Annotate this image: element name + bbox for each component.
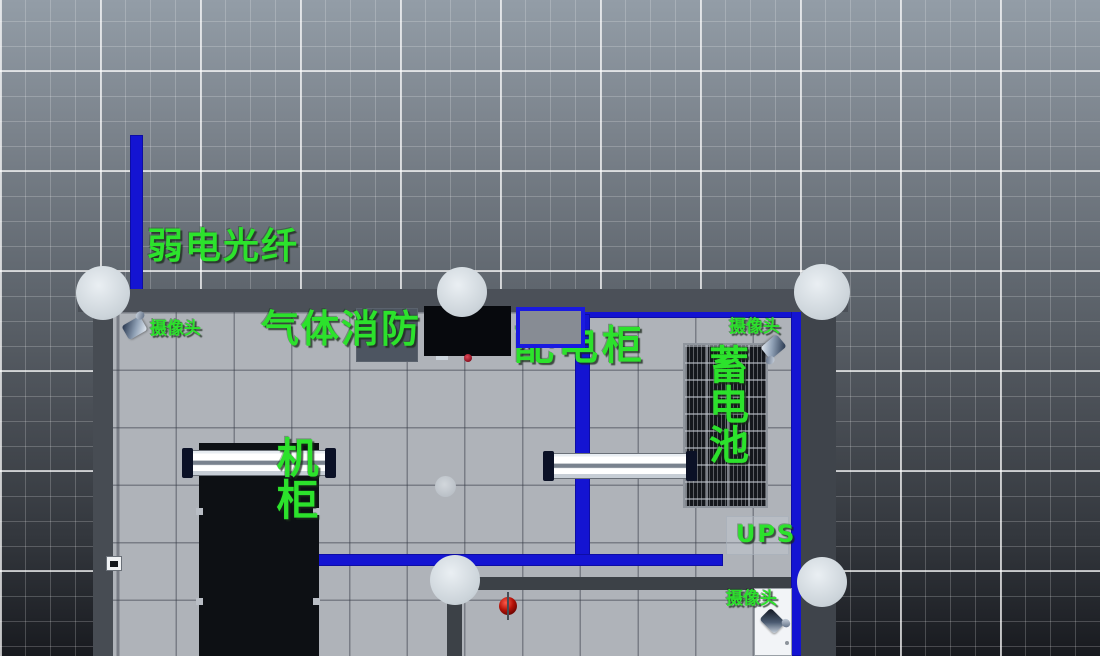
cable-tray-mid-horizontal — [318, 554, 723, 566]
camera-icon-bottom-right[interactable] — [759, 608, 785, 634]
column-bottom-right — [797, 557, 847, 607]
rack-clip — [313, 598, 320, 605]
ups-unit[interactable]: UPS — [726, 516, 789, 555]
cabinet-knob — [785, 641, 789, 645]
machine-room-3d-view: 配电柜 弱电光纤 气体消防 机柜 蓄电池 UPS 摄像头 摄像头 摄像头 — [0, 0, 1100, 656]
indicator-dot-icon — [464, 354, 472, 362]
fire-alarm-icon[interactable] — [499, 597, 517, 615]
column-top-right — [794, 264, 850, 320]
fiber-tray-label: 弱电光纤 — [147, 228, 299, 266]
camera-label-top-right: 摄像头 — [729, 319, 780, 337]
power-distribution-box[interactable] — [516, 307, 585, 348]
light-fixture-right[interactable] — [545, 453, 695, 479]
cable-tray-fiber-vertical — [130, 135, 143, 292]
rack-clip — [196, 598, 203, 605]
ups-label: UPS — [736, 522, 796, 547]
camera-label-top-left: 摄像头 — [150, 321, 201, 339]
column-top-left — [76, 266, 130, 320]
rack-clip — [196, 508, 203, 515]
vent-slot — [436, 356, 448, 360]
column-top-center — [437, 267, 487, 317]
wall-socket — [106, 556, 122, 571]
wall-left — [93, 294, 113, 656]
column-bottom-center — [430, 555, 480, 605]
server-rack-label: 机柜 — [272, 436, 316, 520]
smoke-detector-icon[interactable] — [435, 476, 456, 497]
battery-label: 蓄电池 — [704, 344, 746, 464]
camera-label-bottom-right: 摄像头 — [726, 591, 777, 609]
gas-fire-label: 气体消防 — [261, 310, 421, 350]
